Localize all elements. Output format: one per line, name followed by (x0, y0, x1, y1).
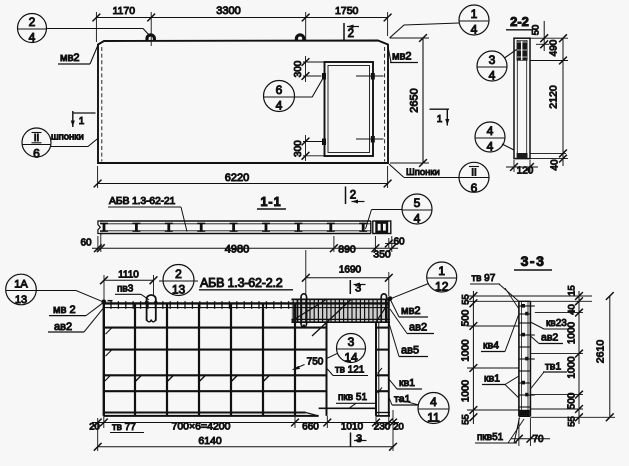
svg-text:тв 97: тв 97 (472, 273, 496, 284)
svg-text:50: 50 (531, 25, 542, 36)
svg-text:мв 2: мв 2 (53, 304, 76, 316)
svg-text:300: 300 (293, 140, 304, 157)
svg-text:Шпонки: Шпонки (406, 167, 440, 178)
svg-text:4: 4 (414, 212, 421, 226)
svg-text:6: 6 (471, 181, 478, 195)
svg-text:кв1: кв1 (399, 377, 415, 389)
svg-text:4: 4 (276, 99, 283, 113)
svg-text:20: 20 (89, 422, 100, 433)
svg-text:1: 1 (471, 7, 478, 21)
svg-text:кв1: кв1 (484, 373, 500, 385)
svg-text:1110: 1110 (118, 270, 139, 281)
svg-text:2120: 2120 (548, 85, 560, 109)
svg-text:4980: 4980 (225, 243, 249, 255)
svg-text:1А: 1А (14, 279, 28, 291)
svg-text:пкв51: пкв51 (477, 432, 504, 443)
svg-text:пв3: пв3 (117, 284, 134, 295)
svg-text:3: 3 (348, 335, 355, 349)
svg-text:3: 3 (355, 283, 361, 295)
svg-text:55: 55 (461, 414, 472, 425)
svg-text:2-2: 2-2 (510, 14, 529, 29)
svg-text:II: II (471, 168, 477, 179)
svg-text:60: 60 (80, 238, 92, 249)
svg-text:2650: 2650 (409, 88, 421, 112)
svg-text:АБВ 1.3-62-21: АБВ 1.3-62-21 (109, 195, 176, 207)
svg-text:3-3: 3-3 (521, 253, 546, 269)
svg-text:60: 60 (393, 237, 405, 248)
svg-text:тв1: тв1 (545, 361, 561, 373)
svg-text:2: 2 (350, 190, 356, 202)
svg-text:кв23: кв23 (546, 318, 567, 329)
svg-text:40: 40 (550, 159, 561, 171)
svg-text:15: 15 (566, 285, 577, 296)
svg-text:кв4: кв4 (483, 340, 499, 352)
svg-text:1000: 1000 (566, 321, 577, 344)
svg-text:1690: 1690 (339, 265, 362, 276)
svg-text:пкв 51: пкв 51 (338, 392, 367, 403)
svg-text:6140: 6140 (198, 435, 222, 447)
svg-text:500: 500 (566, 392, 577, 409)
svg-text:55: 55 (566, 416, 577, 427)
svg-text:350: 350 (373, 249, 391, 261)
svg-text:1000: 1000 (566, 356, 577, 379)
svg-text:шпонки: шпонки (51, 132, 84, 143)
svg-text:660: 660 (302, 422, 319, 433)
svg-text:2: 2 (175, 267, 182, 281)
svg-text:мв2: мв2 (392, 51, 412, 63)
svg-text:2610: 2610 (595, 340, 607, 364)
svg-text:1010: 1010 (341, 422, 364, 433)
svg-text:ав5: ав5 (401, 345, 419, 357)
svg-text:40: 40 (566, 304, 577, 315)
svg-text:14: 14 (344, 351, 358, 365)
svg-text:тв 77: тв 77 (112, 422, 136, 433)
svg-text:4: 4 (487, 140, 494, 154)
svg-text:300: 300 (293, 60, 304, 77)
svg-text:4: 4 (29, 31, 36, 45)
svg-text:4: 4 (489, 69, 496, 83)
svg-text:13: 13 (15, 294, 27, 306)
svg-text:6220: 6220 (225, 172, 249, 184)
svg-text:3300: 3300 (216, 5, 240, 17)
svg-text:1: 1 (438, 264, 445, 278)
svg-text:20: 20 (393, 422, 404, 433)
svg-text:4: 4 (487, 124, 494, 138)
svg-text:ав2: ав2 (541, 332, 558, 344)
svg-text:2: 2 (29, 15, 36, 29)
svg-text:2: 2 (348, 28, 354, 40)
svg-text:120: 120 (517, 166, 534, 177)
svg-text:3: 3 (489, 53, 496, 67)
svg-text:та1: та1 (394, 393, 411, 405)
svg-text:тв 121: тв 121 (335, 365, 365, 376)
svg-text:11: 11 (427, 411, 440, 425)
svg-text:55: 55 (461, 294, 472, 305)
svg-text:ав2: ав2 (409, 322, 427, 334)
svg-text:мв2: мв2 (60, 52, 80, 64)
svg-text:13: 13 (172, 283, 186, 297)
svg-text:1750: 1750 (335, 5, 359, 17)
svg-text:4: 4 (471, 23, 478, 37)
svg-text:4: 4 (430, 395, 437, 409)
svg-text:5: 5 (414, 196, 421, 210)
svg-text:ав2: ав2 (54, 321, 72, 333)
svg-text:6: 6 (33, 147, 40, 161)
svg-text:1: 1 (79, 116, 85, 127)
svg-text:1000: 1000 (461, 339, 472, 362)
svg-text:890: 890 (338, 243, 356, 255)
svg-text:750: 750 (307, 357, 324, 368)
svg-text:1170: 1170 (113, 5, 136, 17)
svg-text:12: 12 (435, 280, 449, 294)
svg-text:700×6=4200: 700×6=4200 (172, 421, 231, 433)
svg-text:1000: 1000 (461, 379, 472, 402)
svg-text:230: 230 (374, 422, 391, 433)
svg-text:500: 500 (461, 309, 472, 326)
svg-text:мв2: мв2 (401, 305, 421, 317)
svg-text:3: 3 (356, 433, 362, 445)
svg-text:1-1: 1-1 (260, 195, 281, 209)
svg-text:6: 6 (276, 83, 283, 97)
svg-text:1: 1 (437, 114, 443, 125)
svg-text:АБВ 1.3-62-2.2: АБВ 1.3-62-2.2 (200, 276, 283, 290)
svg-text:70: 70 (532, 434, 544, 445)
svg-text:490: 490 (549, 39, 560, 56)
